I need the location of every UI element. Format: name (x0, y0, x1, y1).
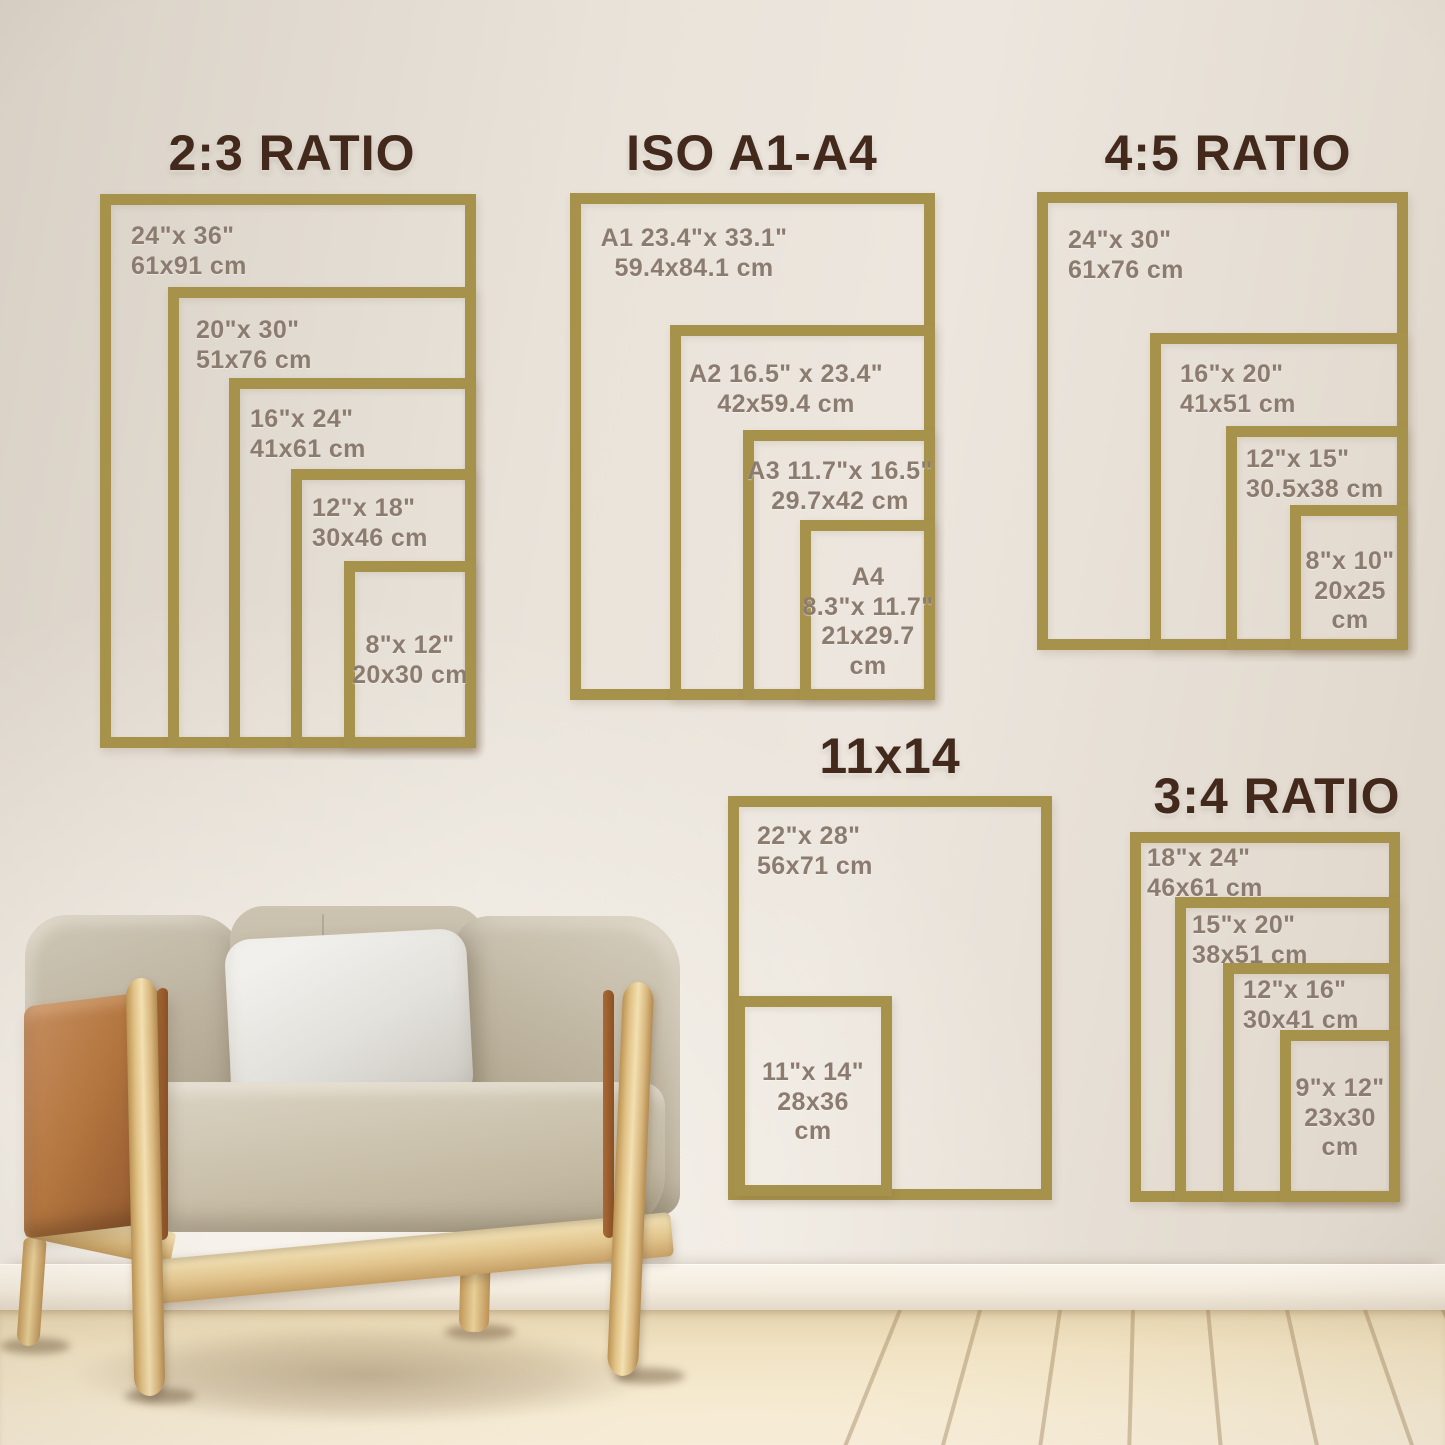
chair-shadow (20, 1316, 710, 1434)
leather-strap-right (603, 990, 614, 1239)
poster-size-guide-photo: 2:3 RATIO24"x 36"61x91 cm20"x 30"51x76 c… (0, 0, 1445, 1445)
armchair (0, 0, 1445, 1445)
chair-seat-cushion (133, 1082, 665, 1232)
